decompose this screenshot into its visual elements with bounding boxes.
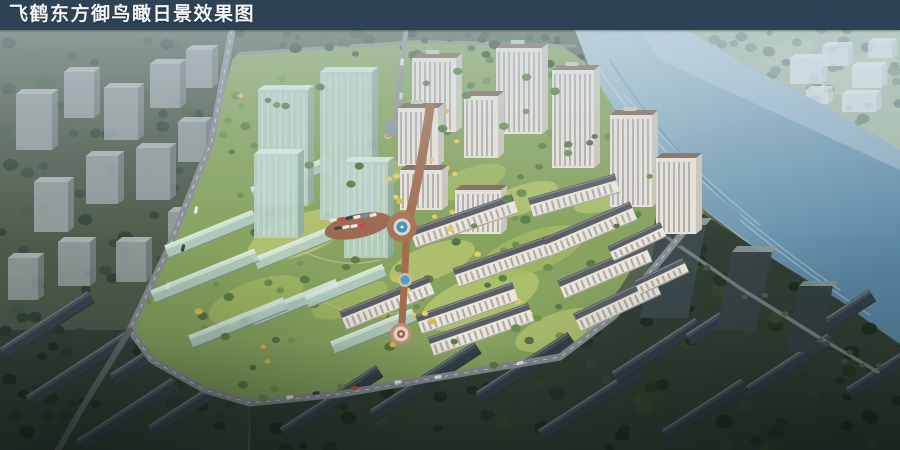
aerial-rendering-scene (0, 0, 900, 450)
rendering-image: 飞鹤东方御鸟瞰日景效果图 (0, 0, 900, 450)
caption-title: 飞鹤东方御鸟瞰日景效果图 (0, 0, 255, 30)
caption-bar: 飞鹤东方御鸟瞰日景效果图 (0, 0, 900, 30)
